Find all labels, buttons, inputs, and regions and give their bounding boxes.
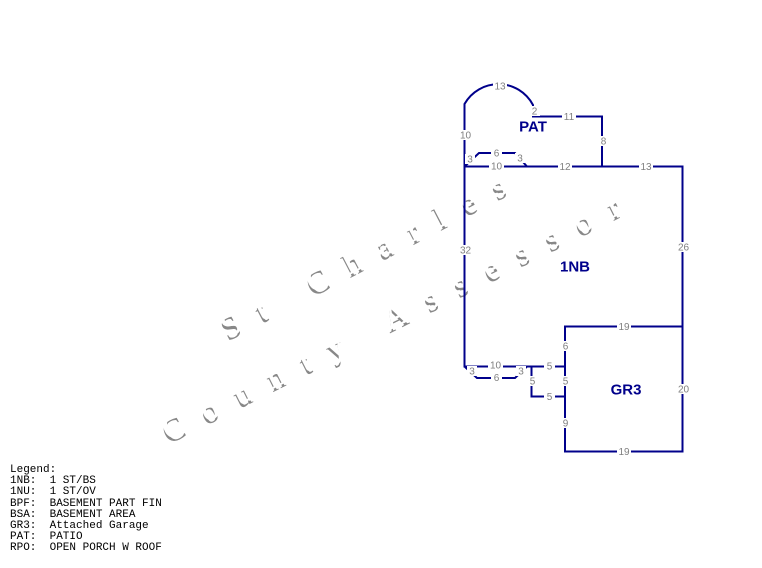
svg-text:6: 6 [563,342,569,353]
svg-text:5: 5 [547,392,553,403]
svg-text:3: 3 [467,155,473,166]
svg-text:6: 6 [494,149,500,160]
svg-text:3: 3 [518,367,524,378]
svg-text:20: 20 [678,385,690,396]
svg-text:12: 12 [559,162,571,173]
svg-text:5: 5 [530,377,536,388]
svg-text:5: 5 [563,377,569,388]
svg-text:GR3: GR3 [611,382,642,399]
svg-text:10: 10 [460,131,472,142]
svg-text:3: 3 [469,367,475,378]
svg-text:5: 5 [547,362,553,373]
svg-text:9: 9 [563,419,569,430]
svg-text:19: 19 [618,322,630,333]
svg-text:13: 13 [494,82,506,93]
svg-text:PAT: PAT [519,119,547,136]
svg-text:6: 6 [494,373,500,384]
svg-text:2: 2 [532,107,538,118]
svg-text:19: 19 [618,447,630,458]
svg-text:10: 10 [491,162,503,173]
svg-text:11: 11 [564,112,575,123]
svg-text:10: 10 [490,361,502,372]
svg-text:26: 26 [678,243,690,254]
svg-text:3: 3 [517,154,523,165]
svg-text:1NB: 1NB [560,259,590,276]
svg-text:32: 32 [460,246,472,257]
svg-text:13: 13 [640,162,652,173]
svg-text:8: 8 [601,137,607,148]
